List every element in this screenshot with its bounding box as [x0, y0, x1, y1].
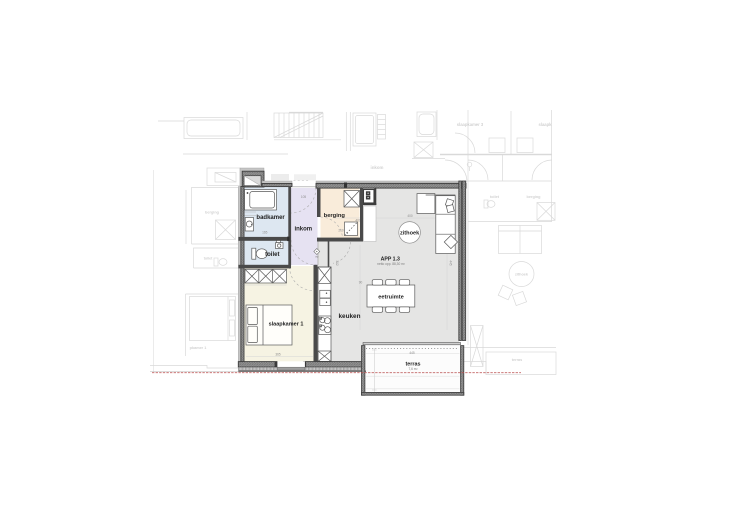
- svg-text:400: 400: [407, 214, 413, 218]
- svg-text:slaapkamer 1: slaapkamer 1: [269, 322, 304, 328]
- svg-text:445: 445: [449, 260, 453, 266]
- svg-text:berging: berging: [324, 213, 346, 219]
- svg-text:slaapkamer 3: slaapkamer 3: [457, 122, 484, 127]
- svg-text:badkamer: badkamer: [256, 215, 285, 221]
- svg-text:toilet: toilet: [204, 257, 213, 261]
- svg-text:zithoek: zithoek: [515, 273, 529, 277]
- svg-text:312: 312: [335, 260, 339, 266]
- svg-text:keuken: keuken: [338, 313, 360, 320]
- svg-text:eetruimte: eetruimte: [378, 294, 404, 300]
- svg-text:berging: berging: [205, 211, 220, 215]
- svg-text:zithoek: zithoek: [400, 230, 420, 236]
- svg-text:inkom: inkom: [294, 226, 312, 232]
- svg-text:165: 165: [262, 231, 268, 235]
- svg-text:pkamer 1: pkamer 1: [190, 346, 207, 350]
- svg-text:365: 365: [275, 353, 281, 357]
- svg-text:terras: terras: [512, 358, 523, 362]
- svg-text:slaapk: slaapk: [538, 122, 552, 127]
- svg-text:toilet: toilet: [490, 195, 500, 199]
- svg-text:90: 90: [359, 281, 363, 285]
- svg-text:inkom: inkom: [371, 165, 384, 170]
- svg-text:105: 105: [301, 195, 307, 199]
- svg-text:netto opp. 88,30 m²: netto opp. 88,30 m²: [377, 262, 405, 266]
- svg-text:berging: berging: [527, 195, 542, 199]
- svg-text:445: 445: [409, 351, 415, 355]
- svg-text:toilet: toilet: [265, 252, 279, 258]
- svg-text:7,6 m²: 7,6 m²: [408, 367, 417, 371]
